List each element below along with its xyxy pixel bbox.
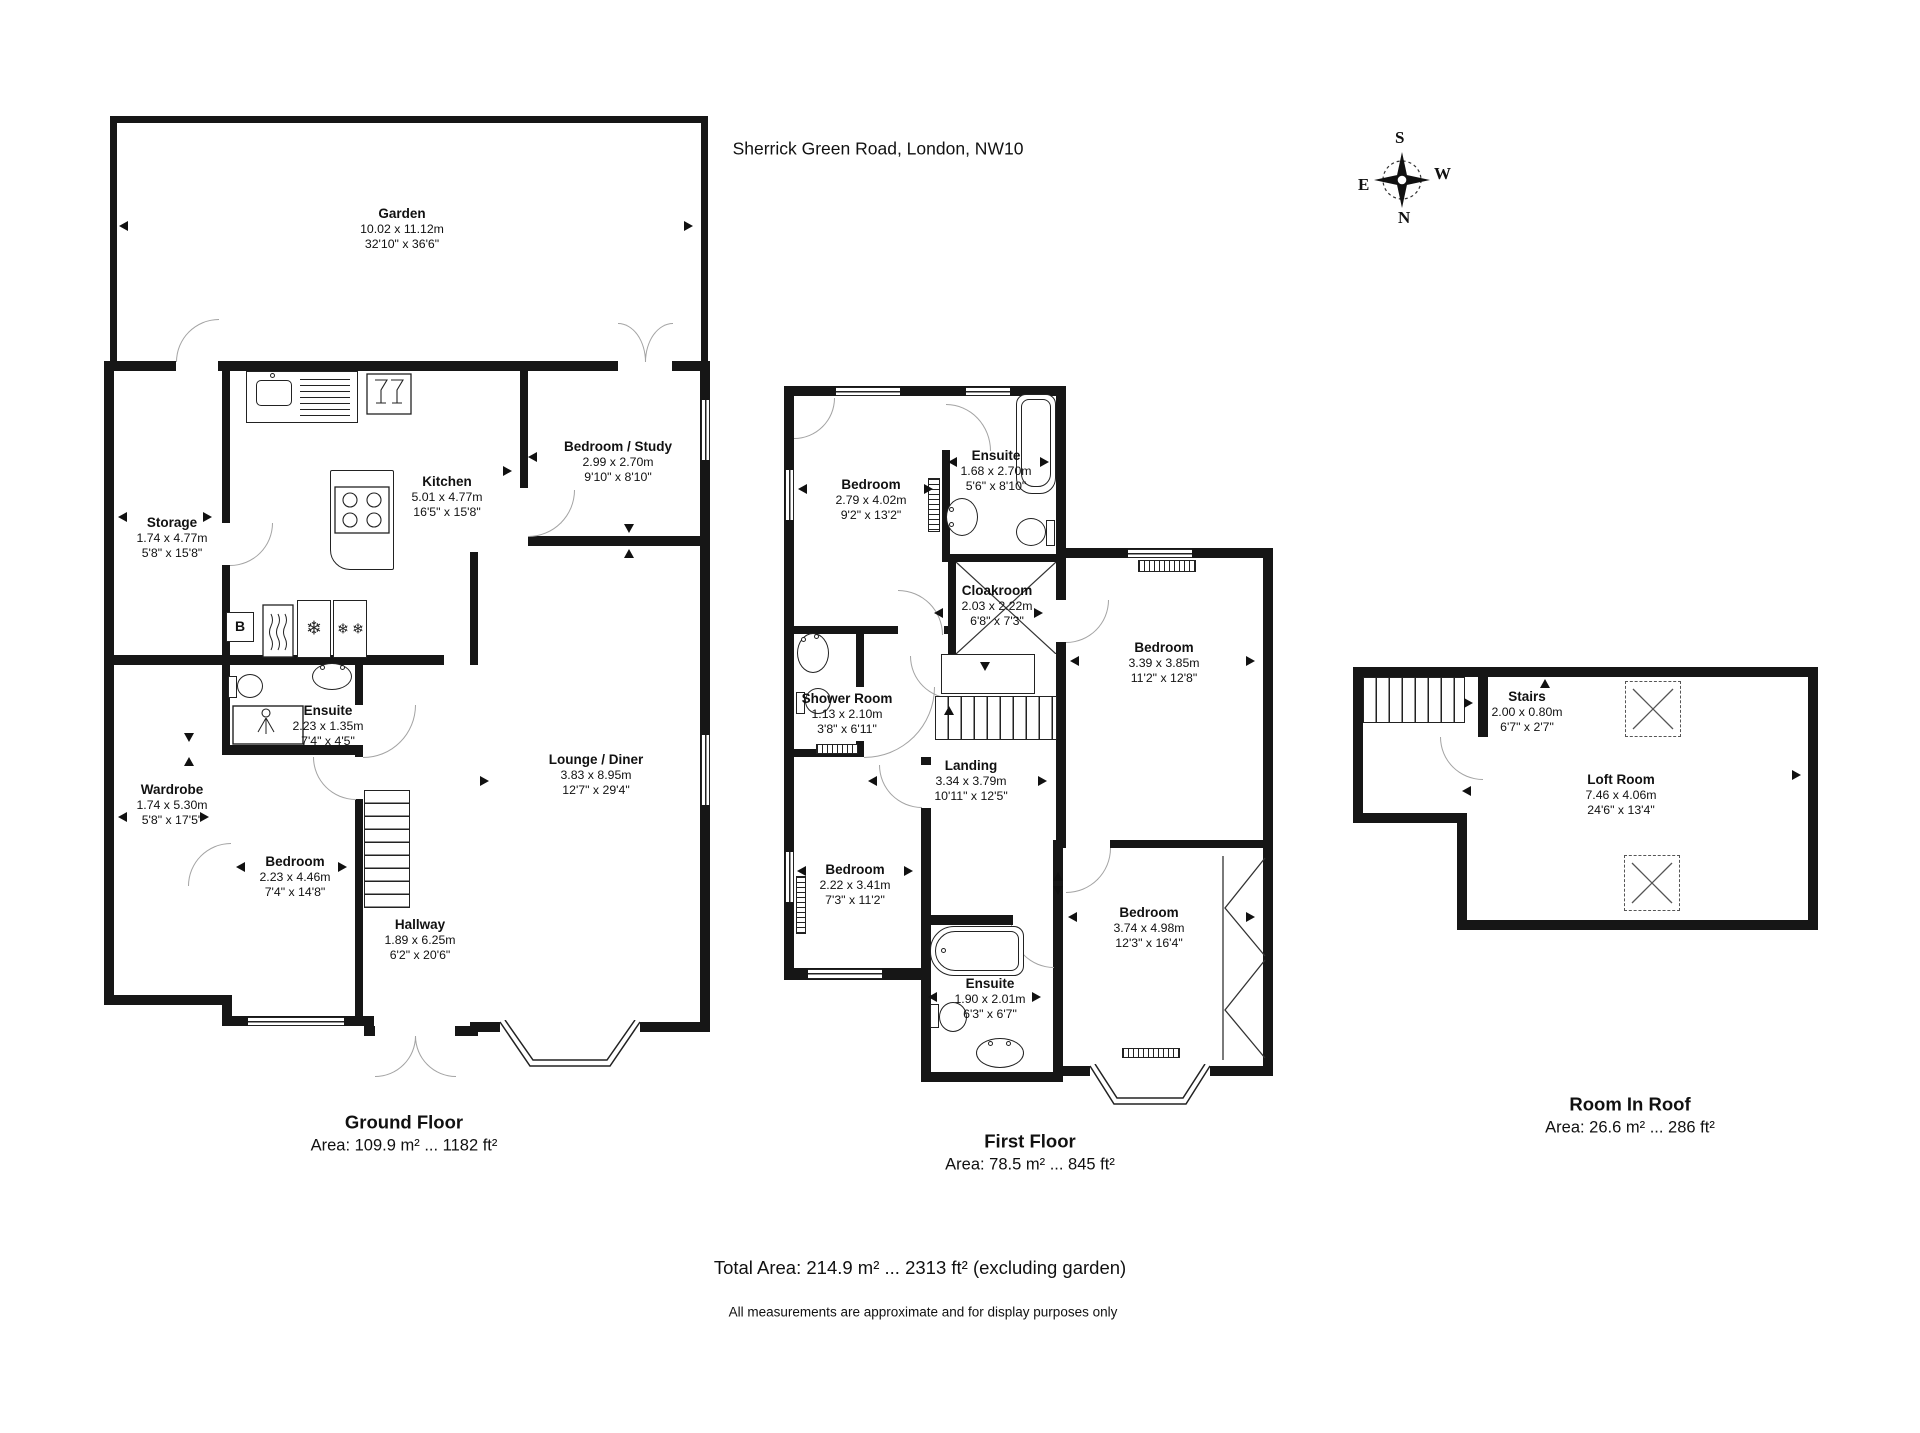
wall — [1457, 920, 1818, 930]
compass-letter-e: E — [1358, 175, 1369, 195]
tap-icon — [949, 507, 954, 512]
wall — [1353, 667, 1363, 823]
room-dim-metric: 1.74 x 5.30m — [136, 798, 207, 813]
drainer-icon — [300, 379, 350, 416]
stair-direction-icon — [944, 706, 954, 715]
room-dim-metric: 2.23 x 1.35m — [292, 719, 363, 734]
room-dim-metric: 1.13 x 2.10m — [802, 707, 893, 722]
room-label-shower-room: Shower Room 1.13 x 2.10m 3'8" x 6'11" — [802, 691, 893, 737]
measure-arrow-icon — [528, 452, 537, 462]
room-label-loft-room: Loft Room 7.46 x 4.06m 24'6" x 13'4" — [1585, 772, 1656, 818]
room-dim-imperial: 7'3" x 11'2" — [819, 893, 890, 908]
heater-icon — [262, 604, 294, 658]
room-name: Kitchen — [411, 474, 482, 490]
wall — [1056, 642, 1066, 848]
measure-arrow-icon — [184, 733, 194, 742]
room-dim-imperial: 32'10" x 36'6" — [360, 237, 444, 252]
door-arc — [188, 843, 231, 886]
room-label-ensuite-front: Ensuite 1.68 x 2.70m 5'6" x 8'10" — [960, 448, 1031, 494]
toilet-icon — [228, 676, 237, 698]
tap-icon — [941, 948, 946, 953]
radiator — [1122, 1048, 1180, 1058]
wall — [364, 1026, 375, 1036]
room-name: Ensuite — [960, 448, 1031, 464]
room-label-bedroom-front: Bedroom 2.79 x 4.02m 9'2" x 13'2" — [835, 477, 906, 523]
room-name: Bedroom — [259, 854, 330, 870]
stairs — [935, 696, 1057, 740]
room-dim-metric: 2.00 x 0.80m — [1491, 705, 1562, 720]
room-name: Shower Room — [802, 691, 893, 707]
room-dim-imperial: 6'7" x 2'7" — [1491, 720, 1562, 735]
wall — [856, 634, 864, 687]
measure-arrow-icon — [904, 866, 913, 876]
wine-glass-icon — [366, 373, 412, 415]
wall — [104, 995, 232, 1005]
radiator — [1138, 560, 1196, 572]
measure-arrow-icon — [1053, 886, 1063, 895]
floor-title: Ground Floor — [311, 1111, 498, 1135]
sink-icon — [312, 663, 352, 690]
room-label-garden: Garden 10.02 x 11.12m 32'10" x 36'6" — [360, 206, 444, 252]
wall — [921, 757, 931, 765]
wall — [948, 562, 956, 654]
room-dim-metric: 1.74 x 4.77m — [136, 531, 207, 546]
room-name: Landing — [934, 758, 1007, 774]
front-door-arc — [375, 1036, 416, 1077]
ground-floor-caption: Ground Floor Area: 109.9 m² ... 1182 ft² — [311, 1111, 498, 1158]
room-label-bedroom-side: Bedroom 3.39 x 3.85m 11'2" x 12'8" — [1128, 640, 1199, 686]
room-name: Cloakroom — [961, 583, 1032, 599]
floor-title: First Floor — [945, 1130, 1115, 1154]
room-label-wardrobe: Wardrobe 1.74 x 5.30m 5'8" x 17'5" — [136, 782, 207, 828]
door-arc — [176, 319, 219, 362]
room-label-ensuite-ground: Ensuite 2.23 x 1.35m 7'4" x 4'5" — [292, 703, 363, 749]
floorplan-page: Sherrick Green Road, London, NW10 S W N … — [0, 0, 1920, 1433]
toilet-icon — [237, 674, 263, 698]
room-dim-metric: 3.39 x 3.85m — [1128, 656, 1199, 671]
tap-icon — [949, 522, 954, 527]
snowflake-icon: ❄ — [306, 618, 322, 641]
room-label-ensuite-rear: Ensuite 1.90 x 2.01m 6'3" x 6'7" — [954, 976, 1025, 1022]
door-arc — [313, 757, 356, 800]
room-name: Ensuite — [292, 703, 363, 719]
measure-arrow-icon — [798, 484, 807, 494]
wall — [1353, 667, 1818, 677]
measure-arrow-icon — [1246, 912, 1255, 922]
velux-cross-icon — [1624, 855, 1680, 911]
snowflake-icon: ❄ — [337, 621, 349, 638]
room-dim-imperial: 12'3" x 16'4" — [1113, 936, 1184, 951]
window — [785, 470, 794, 520]
tap-icon — [340, 665, 345, 670]
measure-arrow-icon — [1068, 912, 1077, 922]
kitchen-sink-icon — [256, 380, 292, 406]
stairs — [1363, 677, 1465, 723]
room-name: Bedroom — [1128, 640, 1199, 656]
sink-icon — [946, 498, 978, 536]
window — [966, 387, 1010, 396]
door-arc — [794, 398, 835, 439]
wall — [942, 554, 1064, 562]
radiator — [796, 876, 806, 934]
door-arc — [1066, 600, 1109, 643]
measure-arrow-icon — [1070, 656, 1079, 666]
window — [1128, 549, 1192, 558]
wall — [104, 361, 176, 371]
door-arc — [1440, 737, 1483, 780]
tap-icon — [988, 1041, 993, 1046]
measure-arrow-icon — [1053, 872, 1063, 881]
floor-area: Area: 78.5 m² ... 845 ft² — [945, 1154, 1115, 1177]
room-dim-metric: 2.22 x 3.41m — [819, 878, 890, 893]
room-dim-metric: 1.89 x 6.25m — [384, 933, 455, 948]
measure-arrow-icon — [118, 512, 127, 522]
room-label-stairs: Stairs 2.00 x 0.80m 6'7" x 2'7" — [1491, 689, 1562, 735]
wall — [355, 799, 363, 1026]
window — [836, 387, 900, 396]
room-dim-imperial: 7'4" x 14'8" — [259, 885, 330, 900]
room-label-bedroom-middle: Bedroom 2.22 x 3.41m 7'3" x 11'2" — [819, 862, 890, 908]
measure-arrow-icon — [119, 221, 128, 231]
room-label-landing: Landing 3.34 x 3.79m 10'11" x 12'5" — [934, 758, 1007, 804]
measure-arrow-icon — [1540, 679, 1550, 688]
room-dim-imperial: 6'2" x 20'6" — [384, 948, 455, 963]
stair-direction-icon — [980, 662, 990, 671]
wall — [1056, 562, 1066, 600]
room-dim-metric: 2.03 x 2.22m — [961, 599, 1032, 614]
room-dim-imperial: 7'4" x 4'5" — [292, 734, 363, 749]
room-name: Wardrobe — [136, 782, 207, 798]
wall — [701, 116, 708, 366]
measure-arrow-icon — [1792, 770, 1801, 780]
measure-arrow-icon — [624, 549, 634, 558]
measure-arrow-icon — [1038, 776, 1047, 786]
tap-icon — [814, 634, 819, 639]
room-label-bedroom-rear: Bedroom 3.74 x 4.98m 12'3" x 16'4" — [1113, 905, 1184, 951]
measure-arrow-icon — [503, 466, 512, 476]
room-label-lounge-diner: Lounge / Diner 3.83 x 8.95m 12'7" x 29'4… — [549, 752, 644, 798]
measure-arrow-icon — [1464, 698, 1473, 708]
compass-letter-s: S — [1395, 128, 1404, 148]
wall — [1478, 677, 1488, 737]
room-dim-metric: 7.46 x 4.06m — [1585, 788, 1656, 803]
room-dim-metric: 3.83 x 8.95m — [549, 768, 644, 783]
wall — [110, 116, 117, 366]
stairs — [364, 790, 410, 908]
floor-area: Area: 26.6 m² ... 286 ft² — [1545, 1117, 1715, 1140]
compass-letter-w: W — [1434, 164, 1451, 184]
bay-window — [1076, 1064, 1224, 1112]
room-dim-metric: 10.02 x 11.12m — [360, 222, 444, 237]
room-label-storage: Storage 1.74 x 4.77m 5'8" x 15'8" — [136, 515, 207, 561]
room-dim-imperial: 5'6" x 8'10" — [960, 479, 1031, 494]
measure-arrow-icon — [1462, 786, 1471, 796]
room-in-roof-caption: Room In Roof Area: 26.6 m² ... 286 ft² — [1545, 1093, 1715, 1140]
wall — [921, 915, 1013, 925]
tap-icon — [320, 665, 325, 670]
door-arc — [1066, 848, 1111, 893]
wall — [110, 116, 708, 123]
address-title: Sherrick Green Road, London, NW10 — [733, 139, 1024, 160]
room-label-cloakroom: Cloakroom 2.03 x 2.22m 6'8" x 7'3" — [961, 583, 1032, 629]
wall — [1110, 840, 1273, 848]
compass: S W N E — [1347, 125, 1457, 235]
tap-icon — [1006, 1041, 1011, 1046]
compass-letter-n: N — [1398, 208, 1410, 228]
room-dim-imperial: 5'8" x 15'8" — [136, 546, 207, 561]
total-area-text: Total Area: 214.9 m² ... 2313 ft² (exclu… — [714, 1257, 1126, 1279]
front-door-arc — [415, 1036, 456, 1077]
window — [701, 400, 710, 460]
measure-arrow-icon — [684, 221, 693, 231]
room-dim-metric: 2.23 x 4.46m — [259, 870, 330, 885]
room-dim-metric: 3.34 x 3.79m — [934, 774, 1007, 789]
room-dim-imperial: 9'2" x 13'2" — [835, 508, 906, 523]
room-name: Bedroom — [819, 862, 890, 878]
window — [248, 1017, 344, 1026]
room-dim-imperial: 24'6" x 13'4" — [1585, 803, 1656, 818]
room-dim-imperial: 9'10" x 8'10" — [564, 470, 672, 485]
room-name: Ensuite — [954, 976, 1025, 992]
room-dim-metric: 1.68 x 2.70m — [960, 464, 1031, 479]
wall — [355, 665, 363, 705]
room-dim-metric: 2.79 x 4.02m — [835, 493, 906, 508]
measure-arrow-icon — [624, 524, 634, 533]
room-dim-imperial: 6'8" x 7'3" — [961, 614, 1032, 629]
room-name: Loft Room — [1585, 772, 1656, 788]
door-arc — [363, 705, 416, 758]
door-arc — [618, 323, 646, 362]
tap-icon — [270, 373, 275, 378]
stove-icon — [334, 486, 390, 534]
room-dim-metric: 2.99 x 2.70m — [564, 455, 672, 470]
room-name: Bedroom / Study — [564, 439, 672, 455]
room-label-kitchen: Kitchen 5.01 x 4.77m 16'5" x 15'8" — [411, 474, 482, 520]
measure-arrow-icon — [934, 608, 943, 618]
boiler-label: B — [226, 612, 254, 642]
stairs — [941, 654, 1035, 694]
room-name: Garden — [360, 206, 444, 222]
velux-cross-icon — [1625, 681, 1681, 737]
wardrobe-icon — [1222, 856, 1266, 1060]
sink-icon — [976, 1038, 1024, 1068]
wall — [921, 1072, 1063, 1082]
measure-arrow-icon — [924, 484, 933, 494]
measure-arrow-icon — [1246, 656, 1255, 666]
room-name: Storage — [136, 515, 207, 531]
window — [808, 969, 882, 979]
bath-icon — [935, 931, 1019, 971]
wall — [944, 626, 956, 634]
room-dim-imperial: 5'8" x 17'5" — [136, 813, 207, 828]
room-label-bedroom-study: Bedroom / Study 2.99 x 2.70m 9'10" x 8'1… — [564, 439, 672, 485]
room-dim-imperial: 12'7" x 29'4" — [549, 783, 644, 798]
room-dim-imperial: 3'8" x 6'11" — [802, 722, 893, 737]
room-dim-imperial: 10'11" x 12'5" — [934, 789, 1007, 804]
toilet-icon — [1046, 520, 1055, 546]
door-arc — [879, 765, 922, 808]
measure-arrow-icon — [928, 992, 937, 1002]
measure-arrow-icon — [480, 776, 489, 786]
wall — [1457, 813, 1467, 930]
room-label-bedroom-ground: Bedroom 2.23 x 4.46m 7'4" x 14'8" — [259, 854, 330, 900]
measure-arrow-icon — [868, 776, 877, 786]
wall — [1808, 667, 1818, 930]
wall — [222, 371, 230, 523]
measure-arrow-icon — [338, 862, 347, 872]
wall — [1053, 848, 1063, 1076]
tap-icon — [801, 637, 806, 642]
wall — [700, 361, 710, 1032]
wall — [218, 361, 618, 371]
wall — [104, 361, 114, 1005]
door-arc — [645, 323, 673, 362]
floor-area: Area: 109.9 m² ... 1182 ft² — [311, 1135, 498, 1158]
room-name: Hallway — [384, 917, 455, 933]
first-floor-caption: First Floor Area: 78.5 m² ... 845 ft² — [945, 1130, 1115, 1177]
room-name: Bedroom — [835, 477, 906, 493]
door-arc — [230, 523, 273, 566]
measure-arrow-icon — [118, 812, 127, 822]
measure-arrow-icon — [1034, 608, 1043, 618]
radiator — [816, 744, 858, 754]
wall — [520, 371, 528, 488]
room-dim-metric: 3.74 x 4.98m — [1113, 921, 1184, 936]
measure-arrow-icon — [184, 757, 194, 766]
measure-arrow-icon — [1040, 457, 1049, 467]
room-dim-imperial: 11'2" x 12'8" — [1128, 671, 1199, 686]
snowflake-icon: ❄ — [352, 621, 364, 638]
toilet-icon — [930, 1004, 939, 1028]
disclaimer-text: All measurements are approximate and for… — [729, 1305, 1118, 1320]
room-name: Lounge / Diner — [549, 752, 644, 768]
bay-window — [486, 1020, 654, 1084]
room-dim-metric: 1.90 x 2.01m — [954, 992, 1025, 1007]
measure-arrow-icon — [1032, 992, 1041, 1002]
window — [701, 735, 710, 805]
door-arc — [946, 404, 991, 451]
door-arc — [528, 490, 575, 537]
wall — [470, 552, 478, 665]
window — [785, 852, 794, 902]
room-dim-imperial: 16'5" x 15'8" — [411, 505, 482, 520]
wall — [1056, 386, 1066, 562]
room-name: Stairs — [1491, 689, 1562, 705]
wall — [1353, 813, 1467, 823]
room-label-hallway: Hallway 1.89 x 6.25m 6'2" x 20'6" — [384, 917, 455, 963]
room-name: Bedroom — [1113, 905, 1184, 921]
toilet-icon — [1016, 518, 1046, 546]
measure-arrow-icon — [797, 866, 806, 876]
wall — [1053, 840, 1066, 848]
measure-arrow-icon — [236, 862, 245, 872]
measure-arrow-icon — [948, 457, 957, 467]
room-dim-metric: 5.01 x 4.77m — [411, 490, 482, 505]
wall — [528, 536, 710, 546]
floor-title: Room In Roof — [1545, 1093, 1715, 1117]
room-dim-imperial: 6'3" x 6'7" — [954, 1007, 1025, 1022]
